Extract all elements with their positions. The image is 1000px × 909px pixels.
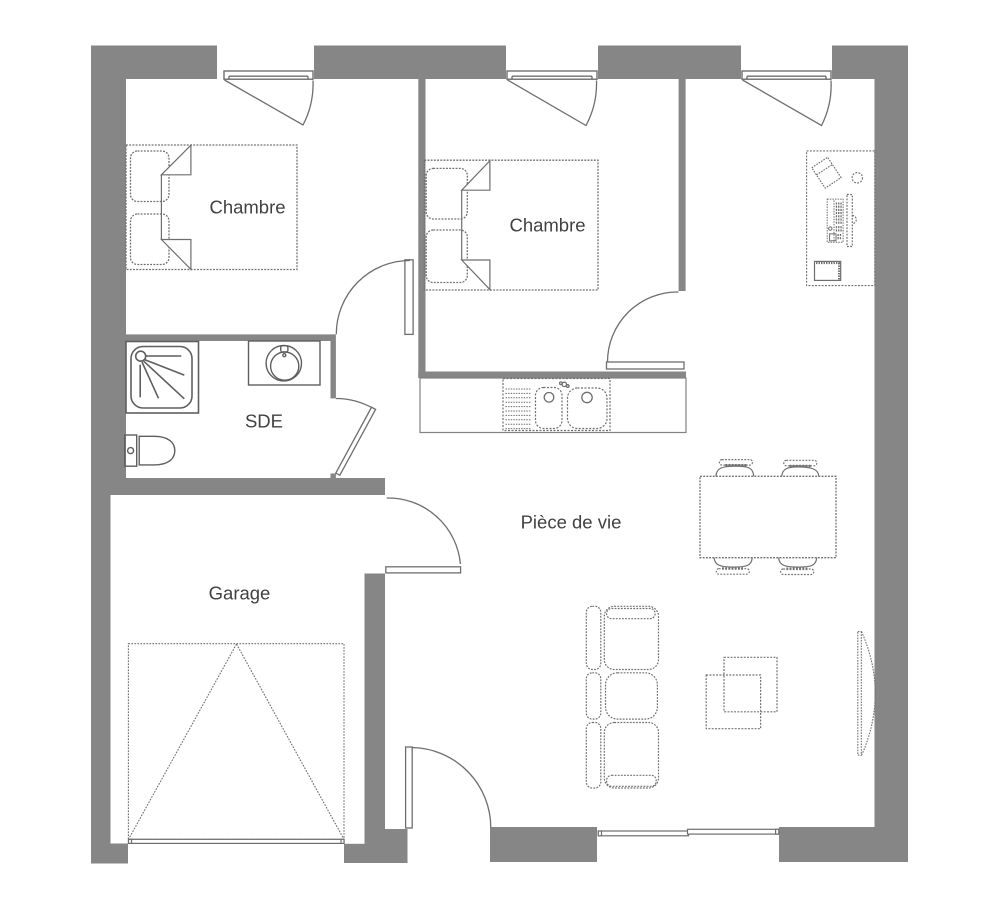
svg-text:Chambre: Chambre (209, 197, 285, 218)
svg-text:SDE: SDE (245, 411, 283, 432)
svg-text:Chambre: Chambre (509, 215, 585, 236)
svg-text:Pièce de vie: Pièce de vie (521, 512, 622, 533)
svg-text:Garage: Garage (209, 582, 271, 603)
